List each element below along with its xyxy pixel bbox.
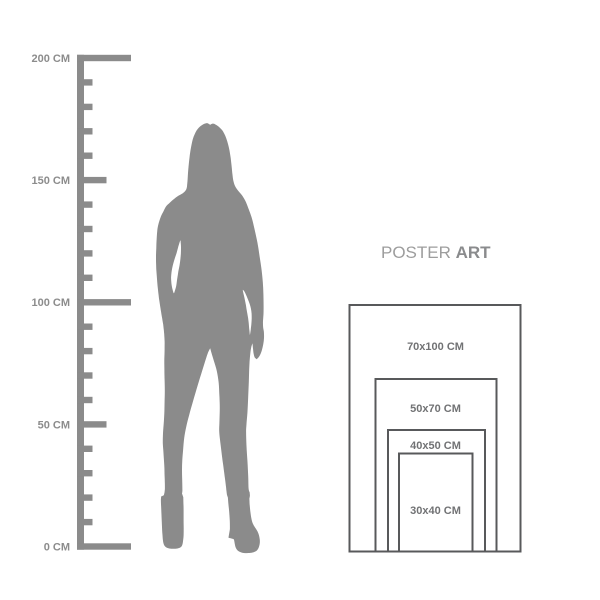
svg-text:0 CM: 0 CM (44, 542, 70, 554)
svg-text:100 CM: 100 CM (31, 297, 70, 309)
svg-text:50x70 CM: 50x70 CM (410, 403, 461, 415)
svg-text:150 CM: 150 CM (31, 175, 70, 187)
svg-text:200 CM: 200 CM (31, 53, 70, 65)
svg-text:50 CM: 50 CM (38, 419, 70, 431)
svg-text:40x50 CM: 40x50 CM (410, 440, 461, 452)
svg-text:POSTER ART: POSTER ART (381, 243, 491, 262)
svg-text:70x100 CM: 70x100 CM (407, 341, 464, 353)
svg-text:30x40 CM: 30x40 CM (410, 505, 461, 517)
